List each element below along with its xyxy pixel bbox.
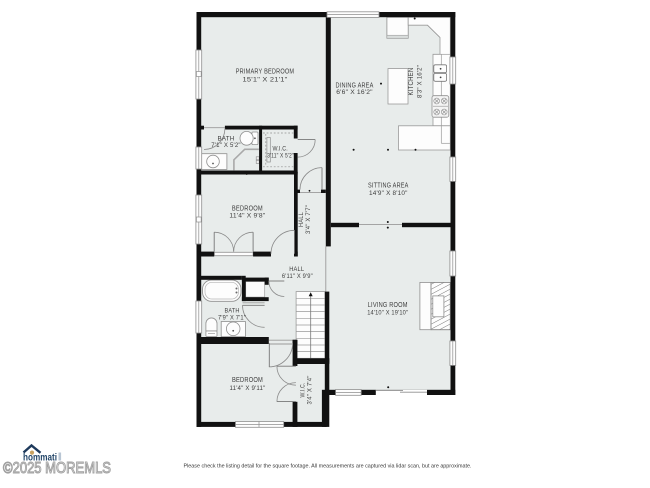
svg-text:BEDROOM: BEDROOM	[232, 375, 263, 384]
svg-text:HALL: HALL	[298, 212, 305, 227]
svg-text:BATH: BATH	[225, 308, 240, 315]
svg-text:6'11" X 9'9": 6'11" X 9'9"	[282, 273, 313, 280]
svg-text:8'3" X 16'2": 8'3" X 16'2"	[417, 65, 424, 98]
svg-text:11'4" X 9'11": 11'4" X 9'11"	[230, 385, 266, 392]
svg-text:SITTING AREA: SITTING AREA	[368, 181, 409, 190]
svg-text:©2025 MOREMLS: ©2025 MOREMLS	[3, 460, 111, 477]
svg-text:BEDROOM: BEDROOM	[232, 203, 263, 212]
svg-text:LIVING ROOM: LIVING ROOM	[368, 300, 408, 309]
svg-text:W.I.C.: W.I.C.	[273, 145, 288, 152]
svg-text:KITCHEN: KITCHEN	[406, 68, 415, 96]
svg-text:3'4" X 7'7": 3'4" X 7'7"	[305, 205, 312, 234]
svg-text:PRIMARY BEDROOM: PRIMARY BEDROOM	[236, 66, 295, 75]
svg-text:7'1" X 5'2": 7'1" X 5'2"	[211, 142, 241, 149]
svg-text:11'4" X 9'8": 11'4" X 9'8"	[229, 213, 265, 220]
svg-text:3'11" X 5'2": 3'11" X 5'2"	[267, 153, 294, 160]
svg-text:15'1" X 21'1": 15'1" X 21'1"	[243, 76, 288, 83]
svg-text:7'9" X 7'1": 7'9" X 7'1"	[218, 315, 246, 322]
svg-text:14'10" X 19'10": 14'10" X 19'10"	[367, 310, 408, 317]
svg-text:HALL: HALL	[289, 266, 304, 273]
svg-text:3'4" X 7'4": 3'4" X 7'4"	[307, 375, 314, 404]
svg-text:6'6" X 16'2": 6'6" X 16'2"	[336, 89, 373, 96]
svg-text:14'9" X 8'10": 14'9" X 8'10"	[369, 190, 408, 197]
svg-text:Please check the listing detai: Please check the listing detail for the …	[184, 464, 472, 470]
svg-text:W.I.C.: W.I.C.	[300, 383, 307, 398]
